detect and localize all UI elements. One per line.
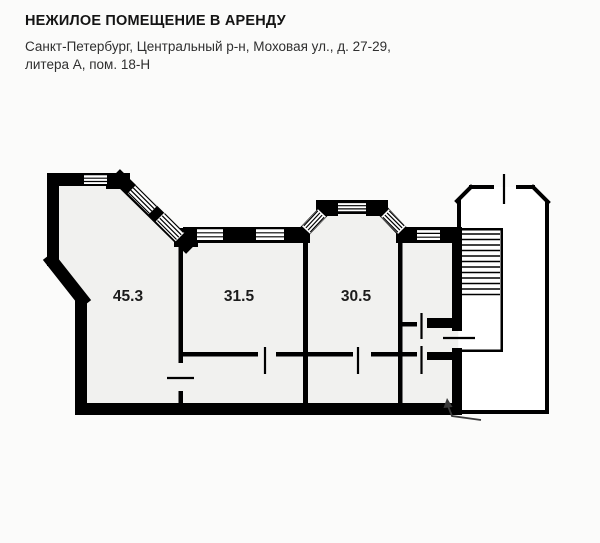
room-area-label: 45.3 [113,288,144,305]
window-icon [256,228,284,241]
window-icon [84,174,107,185]
room-area-label: 30.5 [341,288,372,305]
floor-plan-svg: 45.3 31.5 30.5 [0,0,600,538]
window-icon [338,202,366,212]
window-icon [417,229,440,241]
window-icon [197,228,223,241]
room-area-label: 31.5 [224,288,255,305]
floor-plan: 45.3 31.5 30.5 [0,0,600,538]
